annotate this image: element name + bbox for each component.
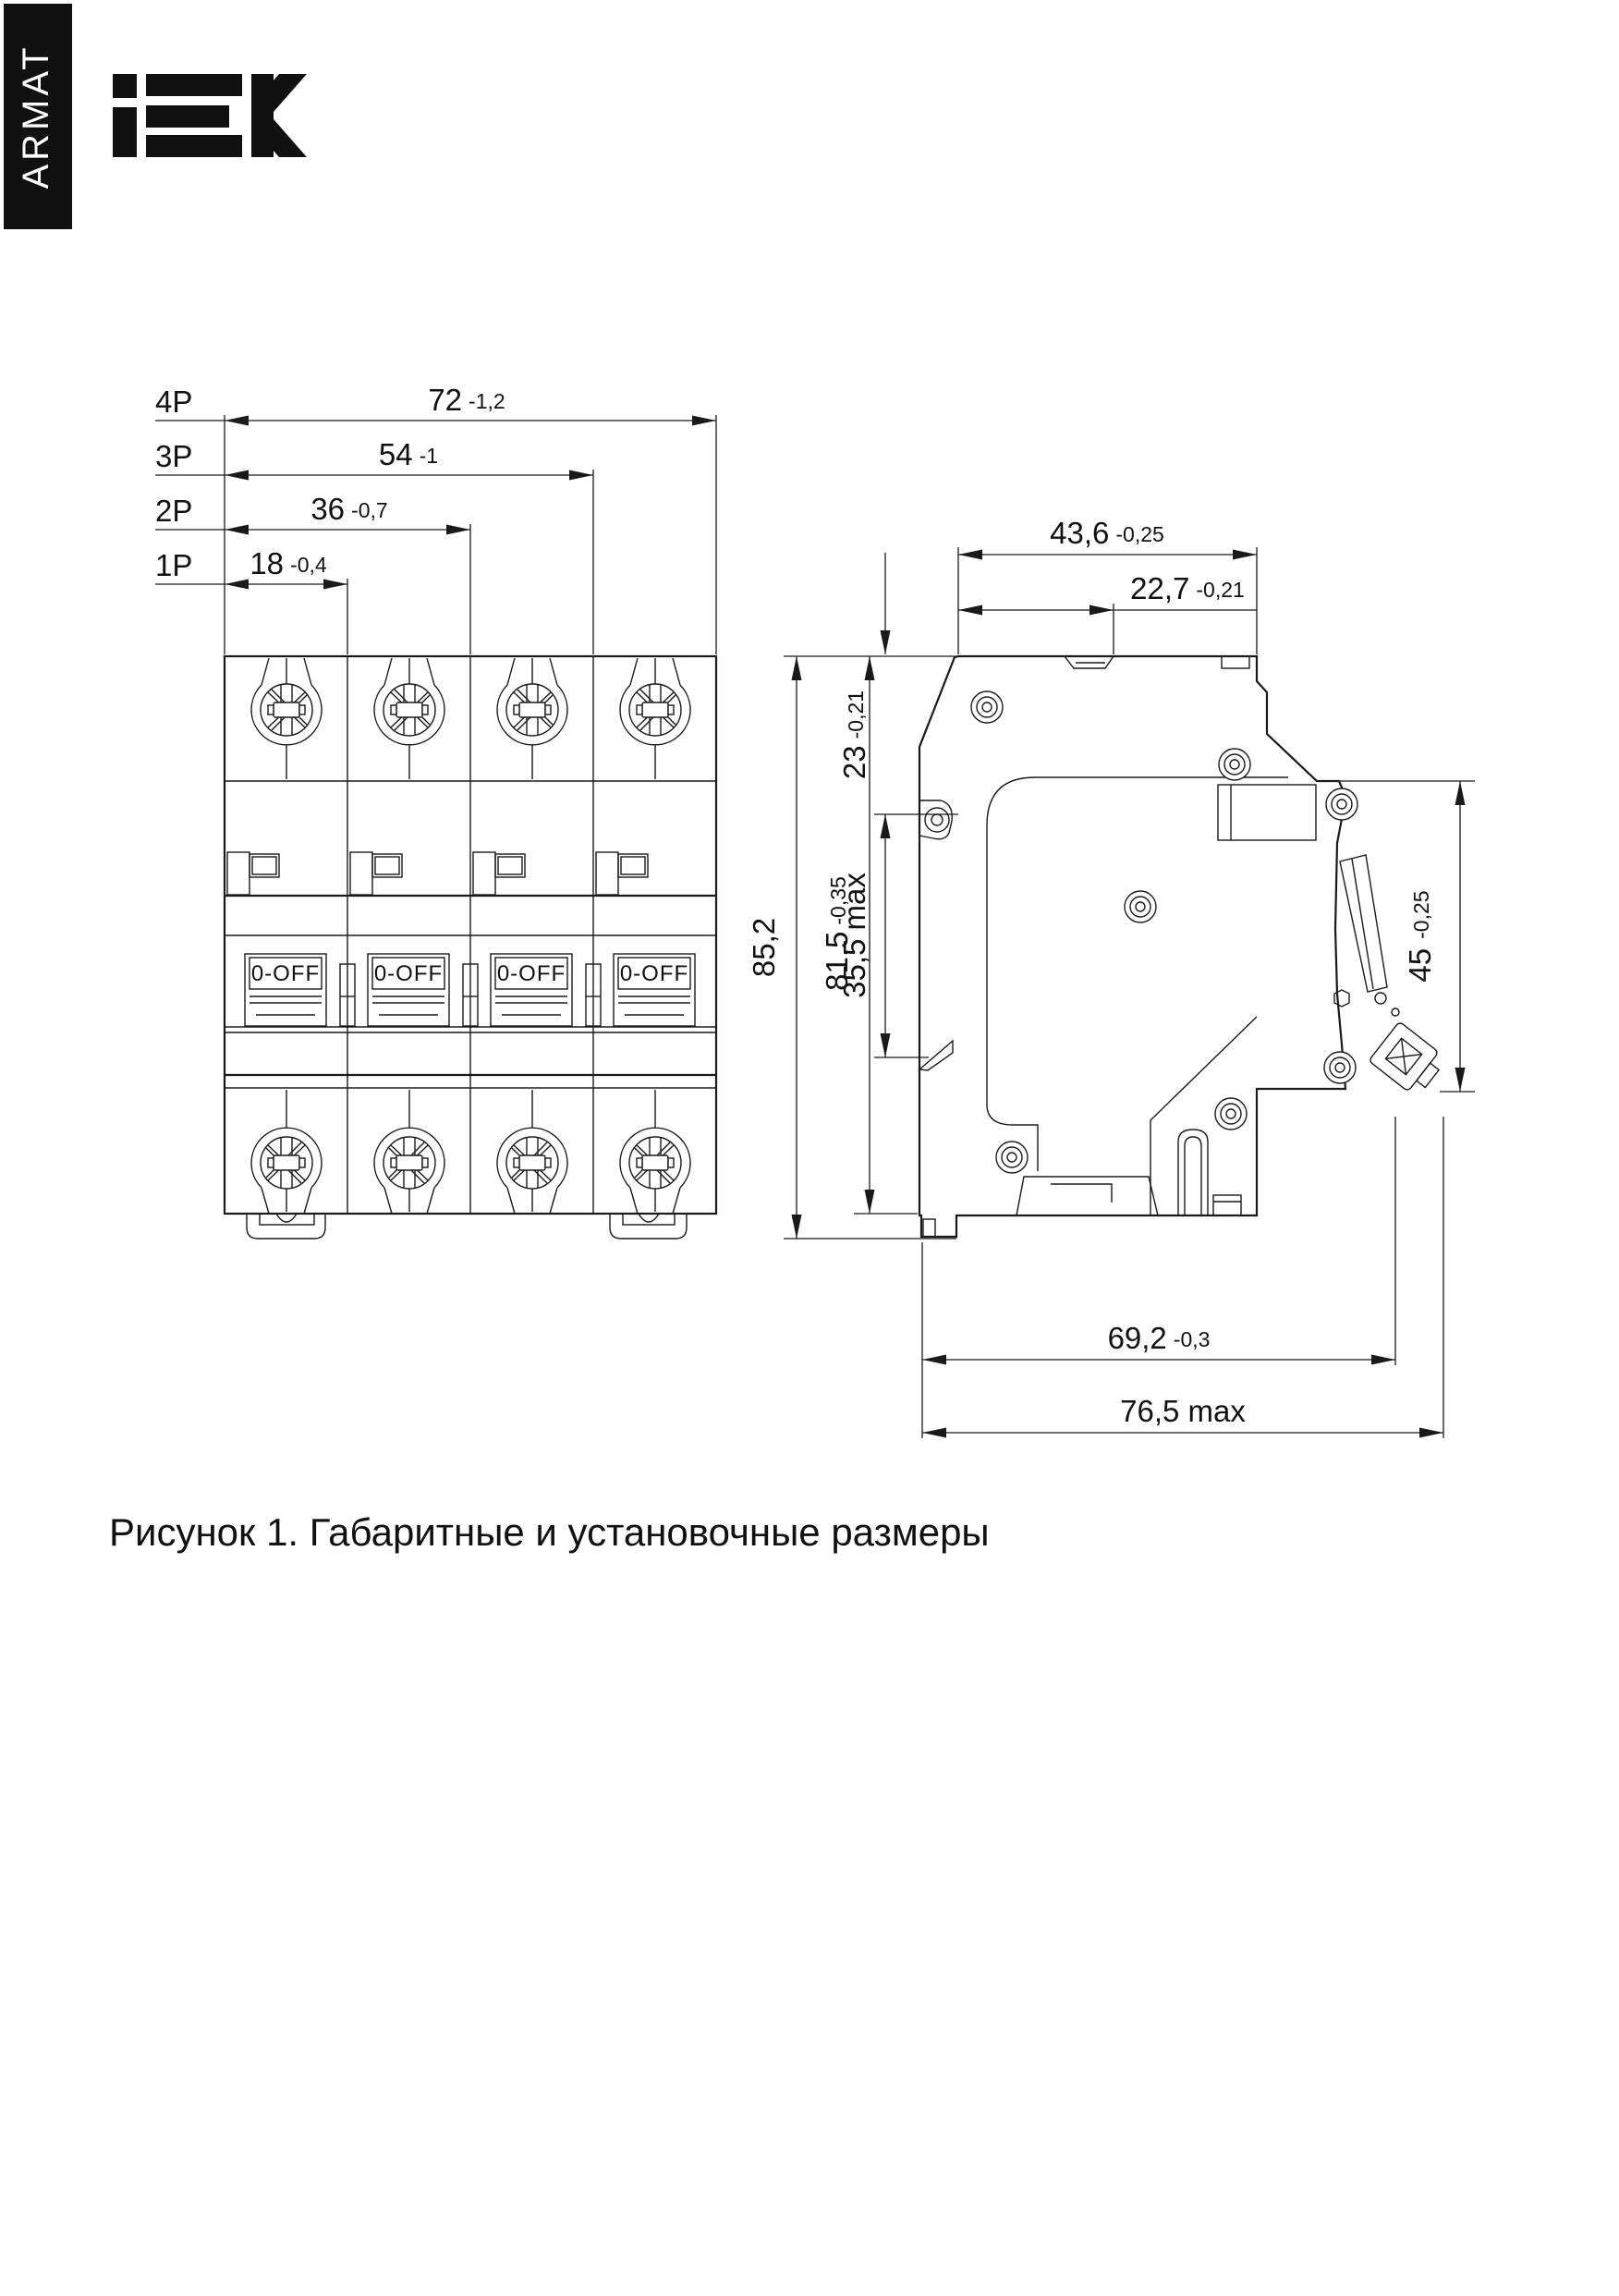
- dim-depth: 69,2-0,3: [1108, 1321, 1211, 1355]
- dim-top-width: 43,6-0,25: [1050, 516, 1164, 550]
- series-label: ARMAT: [16, 43, 56, 189]
- rivet-icon: [1324, 1052, 1356, 1083]
- dim-top-front-offset: 22,7-0,21: [1130, 571, 1245, 605]
- screw-terminal-top-icon: [620, 684, 690, 745]
- pole-count-label: 1P: [155, 548, 192, 582]
- figure-caption: Рисунок 1. Габаритные и установочные раз…: [109, 1510, 990, 1554]
- pole-count-label: 2P: [155, 494, 192, 528]
- dim-latch-offset: 23-0,21: [837, 690, 871, 779]
- series-banner: ARMAT: [4, 4, 72, 229]
- dim-width-1p: 18-0,4: [250, 546, 327, 580]
- screw-terminal-top-icon: [251, 684, 322, 745]
- rivet-icon: [1125, 891, 1156, 922]
- screw-terminal-bottom-icon: [620, 1128, 690, 1189]
- front-dimensions: 4P 72-1,2 3P 54-1 2P 36-0,7 1P 18-0,4: [155, 383, 716, 654]
- dim-overall-height: 85,2: [747, 918, 781, 977]
- mounting-foot-left: [247, 1214, 325, 1239]
- toggle-label: 0-OFF: [497, 961, 566, 986]
- screw-terminal-bottom-icon: [251, 1128, 322, 1189]
- toggle-label: 0-OFF: [620, 961, 688, 986]
- screw-terminal-bottom-icon: [374, 1128, 444, 1189]
- screw-terminal-bottom-icon: [497, 1128, 567, 1189]
- screw-terminal-top-icon: [374, 684, 444, 745]
- dim-max-depth: 76,5 max: [1120, 1394, 1246, 1428]
- side-view: [919, 656, 1447, 1237]
- dim-width-2p: 36-0,7: [310, 492, 387, 526]
- side-dimensions: 43,6-0,25 22,7-0,21 23-0,21 35,5 max 85,…: [747, 516, 1475, 1438]
- toggle-label: 0-OFF: [251, 961, 320, 986]
- screw-terminal-top-icon: [497, 684, 567, 745]
- drawing-page: ARMAT 4P 72-1,2 3P 5: [0, 0, 1619, 2296]
- iek-logo: [113, 74, 307, 157]
- mounting-foot-right: [610, 1214, 687, 1239]
- dim-width-4p: 72-1,2: [428, 383, 505, 417]
- dim-body-height: 81,5-0,35: [820, 876, 854, 991]
- rivet-icon: [1215, 1098, 1247, 1130]
- rivet-icon: [1219, 749, 1250, 780]
- breaker-side-body: [919, 656, 1345, 1237]
- rivet-icon: [1326, 788, 1357, 820]
- dim-front-height: 45-0,25: [1403, 890, 1437, 982]
- pole-count-label: 3P: [155, 439, 192, 473]
- front-view: 4P 72-1,2 3P 54-1 2P 36-0,7 1P 18-0,4: [155, 383, 716, 1239]
- dim-width-3p: 54-1: [379, 437, 438, 471]
- rivet-icon: [996, 1142, 1028, 1173]
- rivet-icon: [971, 691, 1003, 723]
- toggle-label: 0-OFF: [374, 961, 443, 986]
- pole-count-label: 4P: [155, 385, 192, 419]
